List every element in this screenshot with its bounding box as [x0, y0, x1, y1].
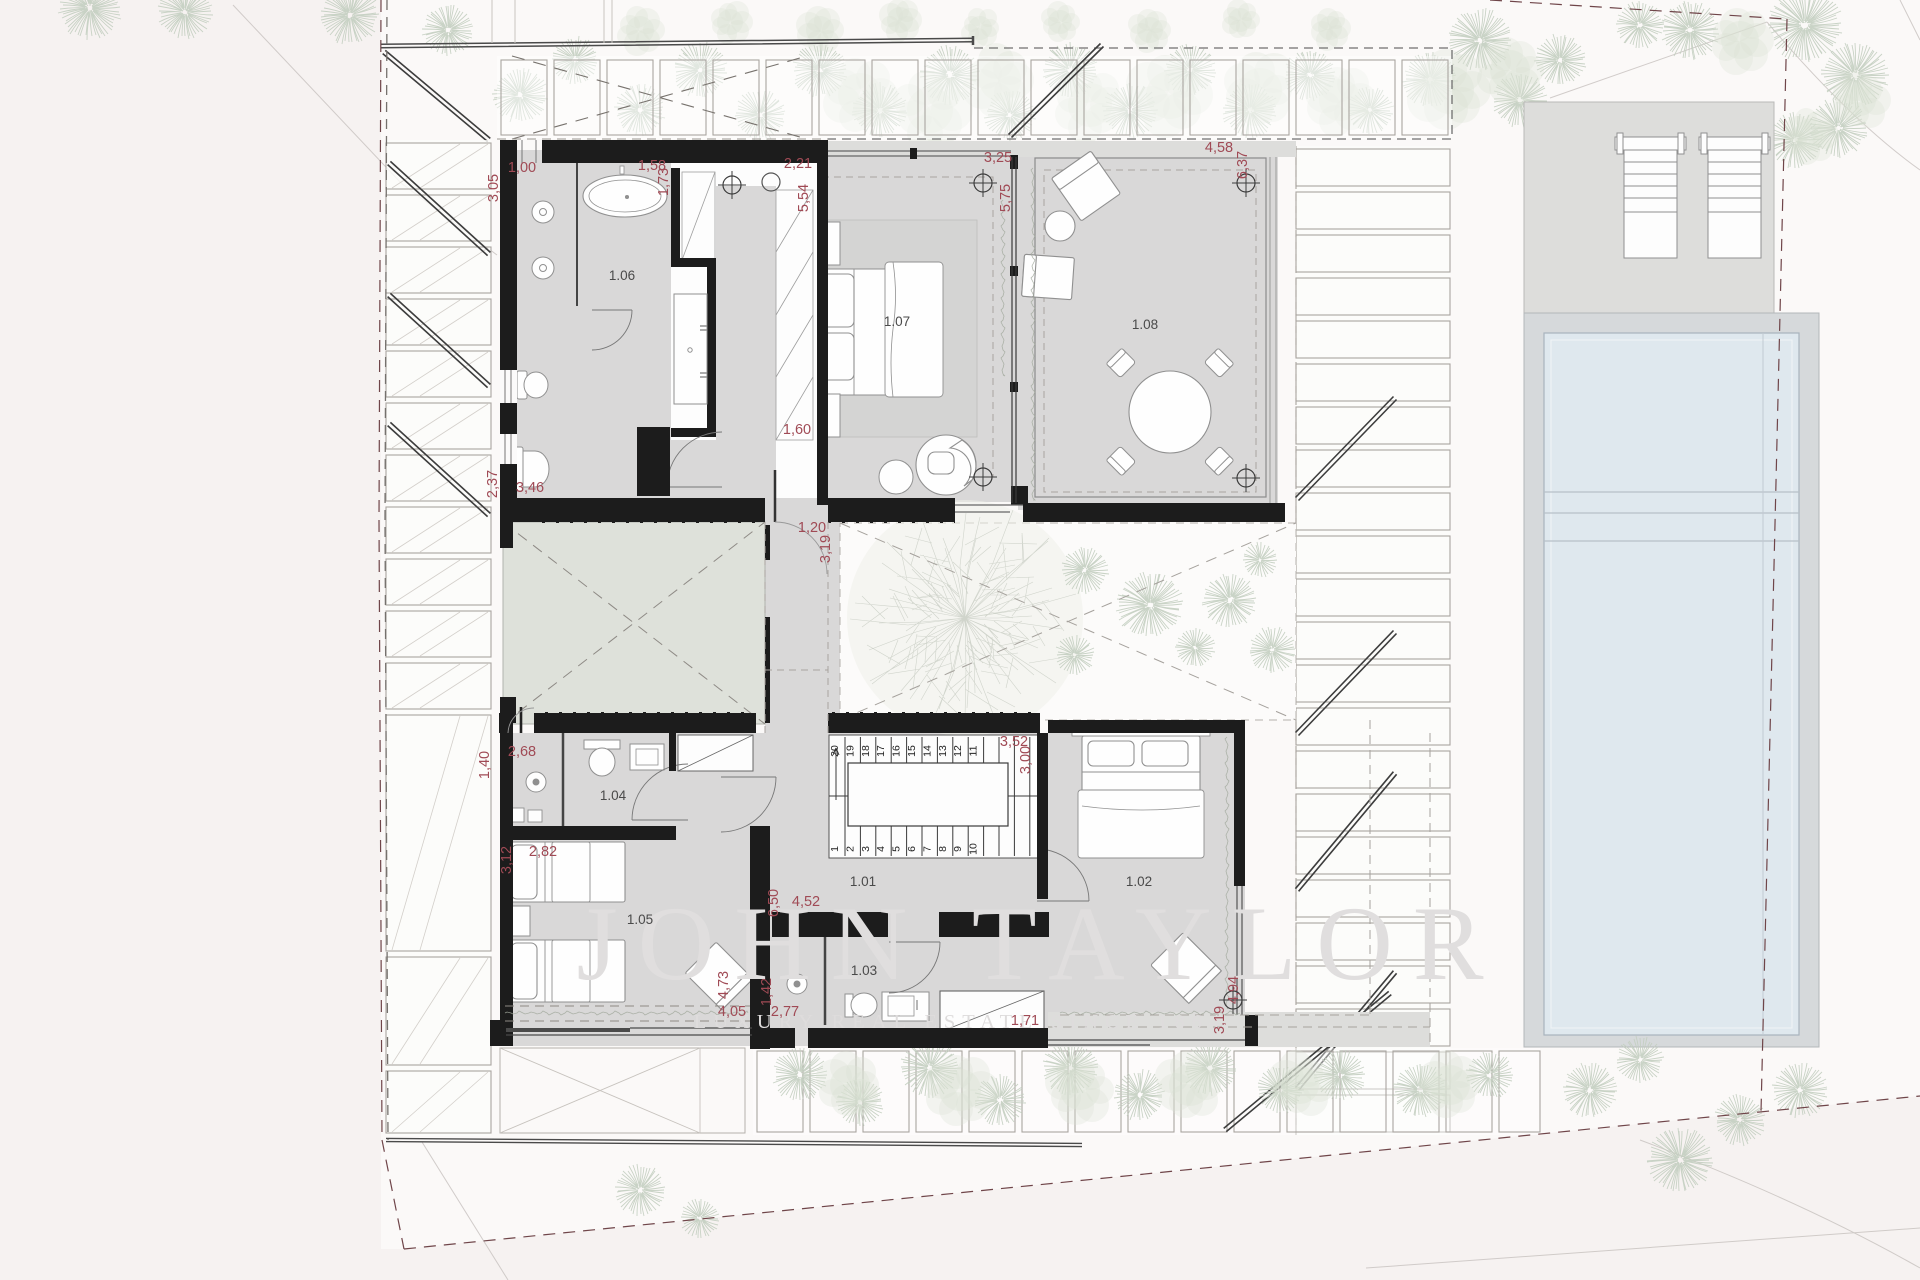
- svg-text:1,20: 1,20: [798, 520, 826, 536]
- svg-text:1,00: 1,00: [508, 160, 536, 176]
- svg-text:6,37: 6,37: [1235, 151, 1251, 179]
- svg-text:1: 1: [829, 846, 841, 852]
- svg-text:4,94: 4,94: [1226, 976, 1242, 1004]
- svg-text:3,46: 3,46: [516, 480, 544, 496]
- svg-text:1.06: 1.06: [609, 268, 635, 283]
- svg-text:15: 15: [906, 745, 918, 757]
- svg-text:20: 20: [829, 745, 841, 757]
- svg-text:1,73: 1,73: [656, 168, 672, 196]
- svg-text:4,73: 4,73: [716, 971, 732, 999]
- svg-text:3: 3: [860, 846, 872, 852]
- svg-text:1,71: 1,71: [1011, 1013, 1039, 1029]
- svg-text:7: 7: [921, 846, 933, 852]
- svg-text:19: 19: [844, 745, 856, 757]
- svg-text:2,82: 2,82: [529, 844, 557, 860]
- svg-text:12: 12: [952, 745, 964, 757]
- svg-text:2: 2: [844, 846, 856, 852]
- svg-text:1.07: 1.07: [884, 314, 910, 329]
- svg-text:11: 11: [968, 745, 980, 756]
- svg-text:3,00: 3,00: [1018, 746, 1034, 774]
- svg-text:3,19: 3,19: [1212, 1006, 1228, 1034]
- svg-text:18: 18: [860, 745, 872, 757]
- svg-text:17: 17: [875, 745, 887, 757]
- svg-text:14: 14: [921, 745, 933, 757]
- svg-text:4,52: 4,52: [792, 894, 820, 910]
- svg-text:16: 16: [891, 745, 903, 757]
- svg-text:13: 13: [937, 745, 949, 757]
- svg-text:1.08: 1.08: [1132, 317, 1158, 332]
- svg-text:2,37: 2,37: [485, 470, 501, 498]
- svg-text:10: 10: [968, 843, 980, 855]
- svg-text:3,25: 3,25: [984, 150, 1012, 166]
- svg-text:2,77: 2,77: [771, 1004, 799, 1020]
- svg-text:3,12: 3,12: [499, 846, 515, 874]
- svg-text:4: 4: [875, 846, 887, 852]
- svg-text:6: 6: [906, 846, 918, 852]
- svg-text:1.02: 1.02: [1126, 874, 1152, 889]
- svg-text:1,60: 1,60: [783, 422, 811, 438]
- svg-text:5,54: 5,54: [796, 184, 812, 212]
- svg-text:1.04: 1.04: [600, 788, 627, 803]
- svg-text:1.03: 1.03: [851, 963, 877, 978]
- svg-text:8: 8: [937, 846, 949, 852]
- svg-text:1.01: 1.01: [850, 874, 876, 889]
- svg-text:5: 5: [891, 846, 903, 852]
- svg-text:1,42: 1,42: [759, 978, 775, 1006]
- svg-text:4,05: 4,05: [718, 1004, 746, 1020]
- svg-text:4,58: 4,58: [1205, 140, 1233, 156]
- svg-text:3,05: 3,05: [486, 174, 502, 202]
- svg-text:9: 9: [952, 846, 964, 852]
- svg-text:2,68: 2,68: [508, 744, 536, 760]
- svg-text:5,75: 5,75: [998, 184, 1014, 212]
- svg-text:6,50: 6,50: [766, 889, 782, 917]
- svg-text:2,21: 2,21: [784, 156, 812, 172]
- svg-text:1,40: 1,40: [477, 751, 493, 779]
- svg-text:3,19: 3,19: [818, 535, 834, 563]
- svg-text:1.05: 1.05: [627, 912, 653, 927]
